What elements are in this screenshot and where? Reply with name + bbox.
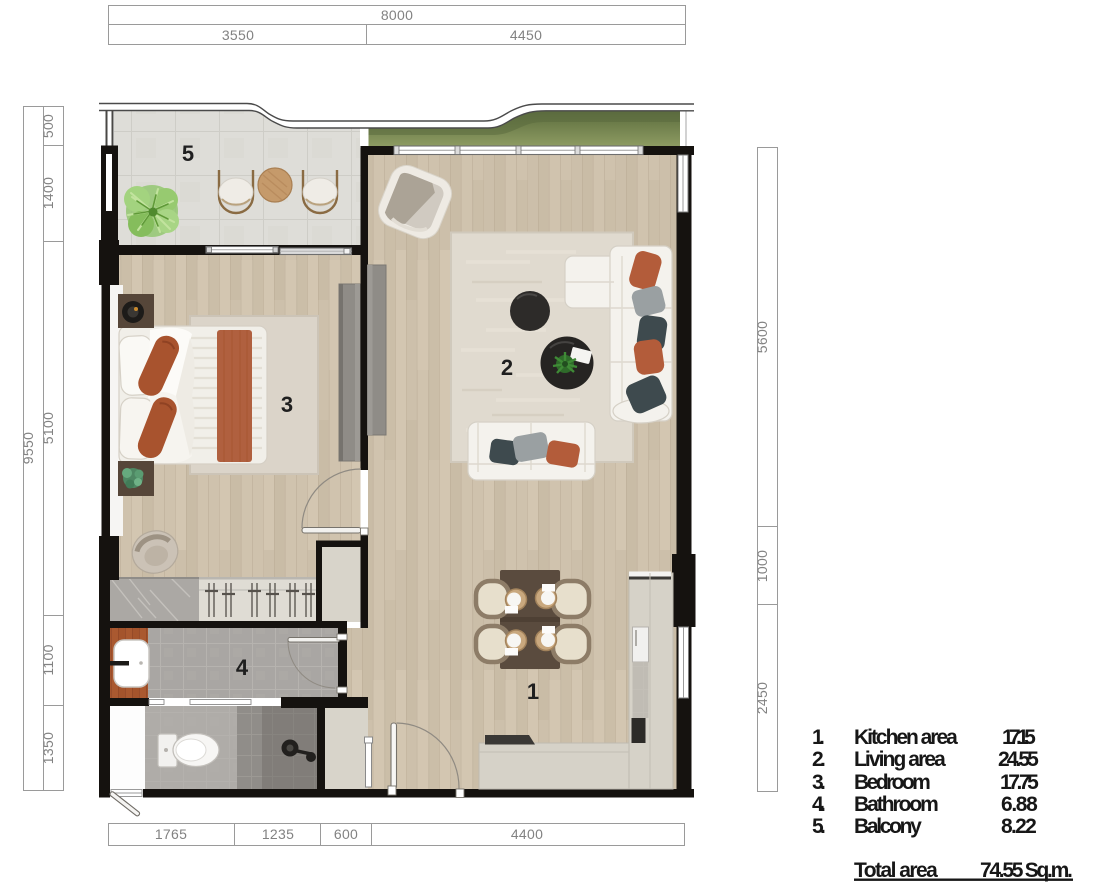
svg-text:1.: 1.	[812, 726, 825, 749]
svg-text:1235: 1235	[262, 826, 294, 842]
svg-text:9550: 9550	[20, 432, 36, 464]
svg-text:Kitchen area: Kitchen area	[854, 726, 958, 749]
svg-text:2450: 2450	[754, 682, 770, 714]
svg-text:Living area: Living area	[854, 748, 946, 771]
svg-text:500: 500	[40, 114, 56, 138]
svg-text:4450: 4450	[510, 27, 542, 43]
svg-text:3: 3	[281, 392, 293, 417]
svg-text:600: 600	[334, 826, 358, 842]
svg-text:1100: 1100	[40, 644, 56, 675]
svg-text:8.22: 8.22	[1001, 815, 1037, 838]
svg-text:6.88: 6.88	[1001, 793, 1038, 816]
svg-text:4: 4	[236, 655, 249, 680]
svg-text:4400: 4400	[511, 826, 543, 842]
svg-text:1400: 1400	[40, 177, 56, 209]
svg-text:1350: 1350	[40, 732, 56, 764]
svg-text:2: 2	[501, 355, 513, 380]
svg-text:2.: 2.	[812, 748, 826, 771]
svg-text:3.: 3.	[812, 771, 826, 794]
svg-text:5.: 5.	[812, 815, 826, 838]
svg-text:1000: 1000	[754, 550, 770, 582]
svg-text:5600: 5600	[754, 321, 770, 353]
svg-text:5100: 5100	[40, 412, 56, 444]
svg-text:Bathroom: Bathroom	[854, 793, 939, 816]
svg-text:Bedroom: Bedroom	[854, 771, 931, 794]
svg-text:Balcony: Balcony	[854, 815, 922, 838]
svg-text:8000: 8000	[381, 7, 413, 23]
svg-text:1: 1	[527, 679, 539, 704]
svg-text:5: 5	[182, 141, 194, 166]
svg-text:1765: 1765	[155, 826, 187, 842]
svg-text:3550: 3550	[222, 27, 254, 43]
svg-text:4.: 4.	[812, 793, 826, 816]
svg-text:24.55: 24.55	[998, 748, 1039, 771]
svg-text:17.15: 17.15	[1002, 726, 1036, 749]
svg-text:17.75: 17.75	[1000, 771, 1039, 794]
